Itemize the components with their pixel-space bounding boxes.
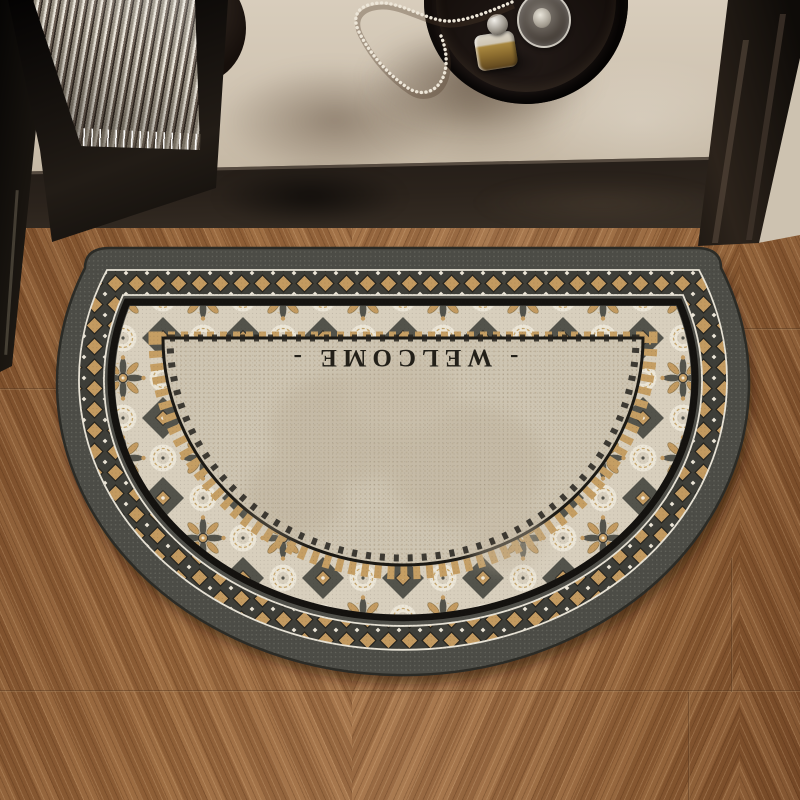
scene: - WELCOME - [0,0,800,800]
mat-texture-overlay [57,248,749,675]
welcome-text: - WELCOME - [288,344,519,371]
welcome-mat: - WELCOME - [0,0,800,800]
